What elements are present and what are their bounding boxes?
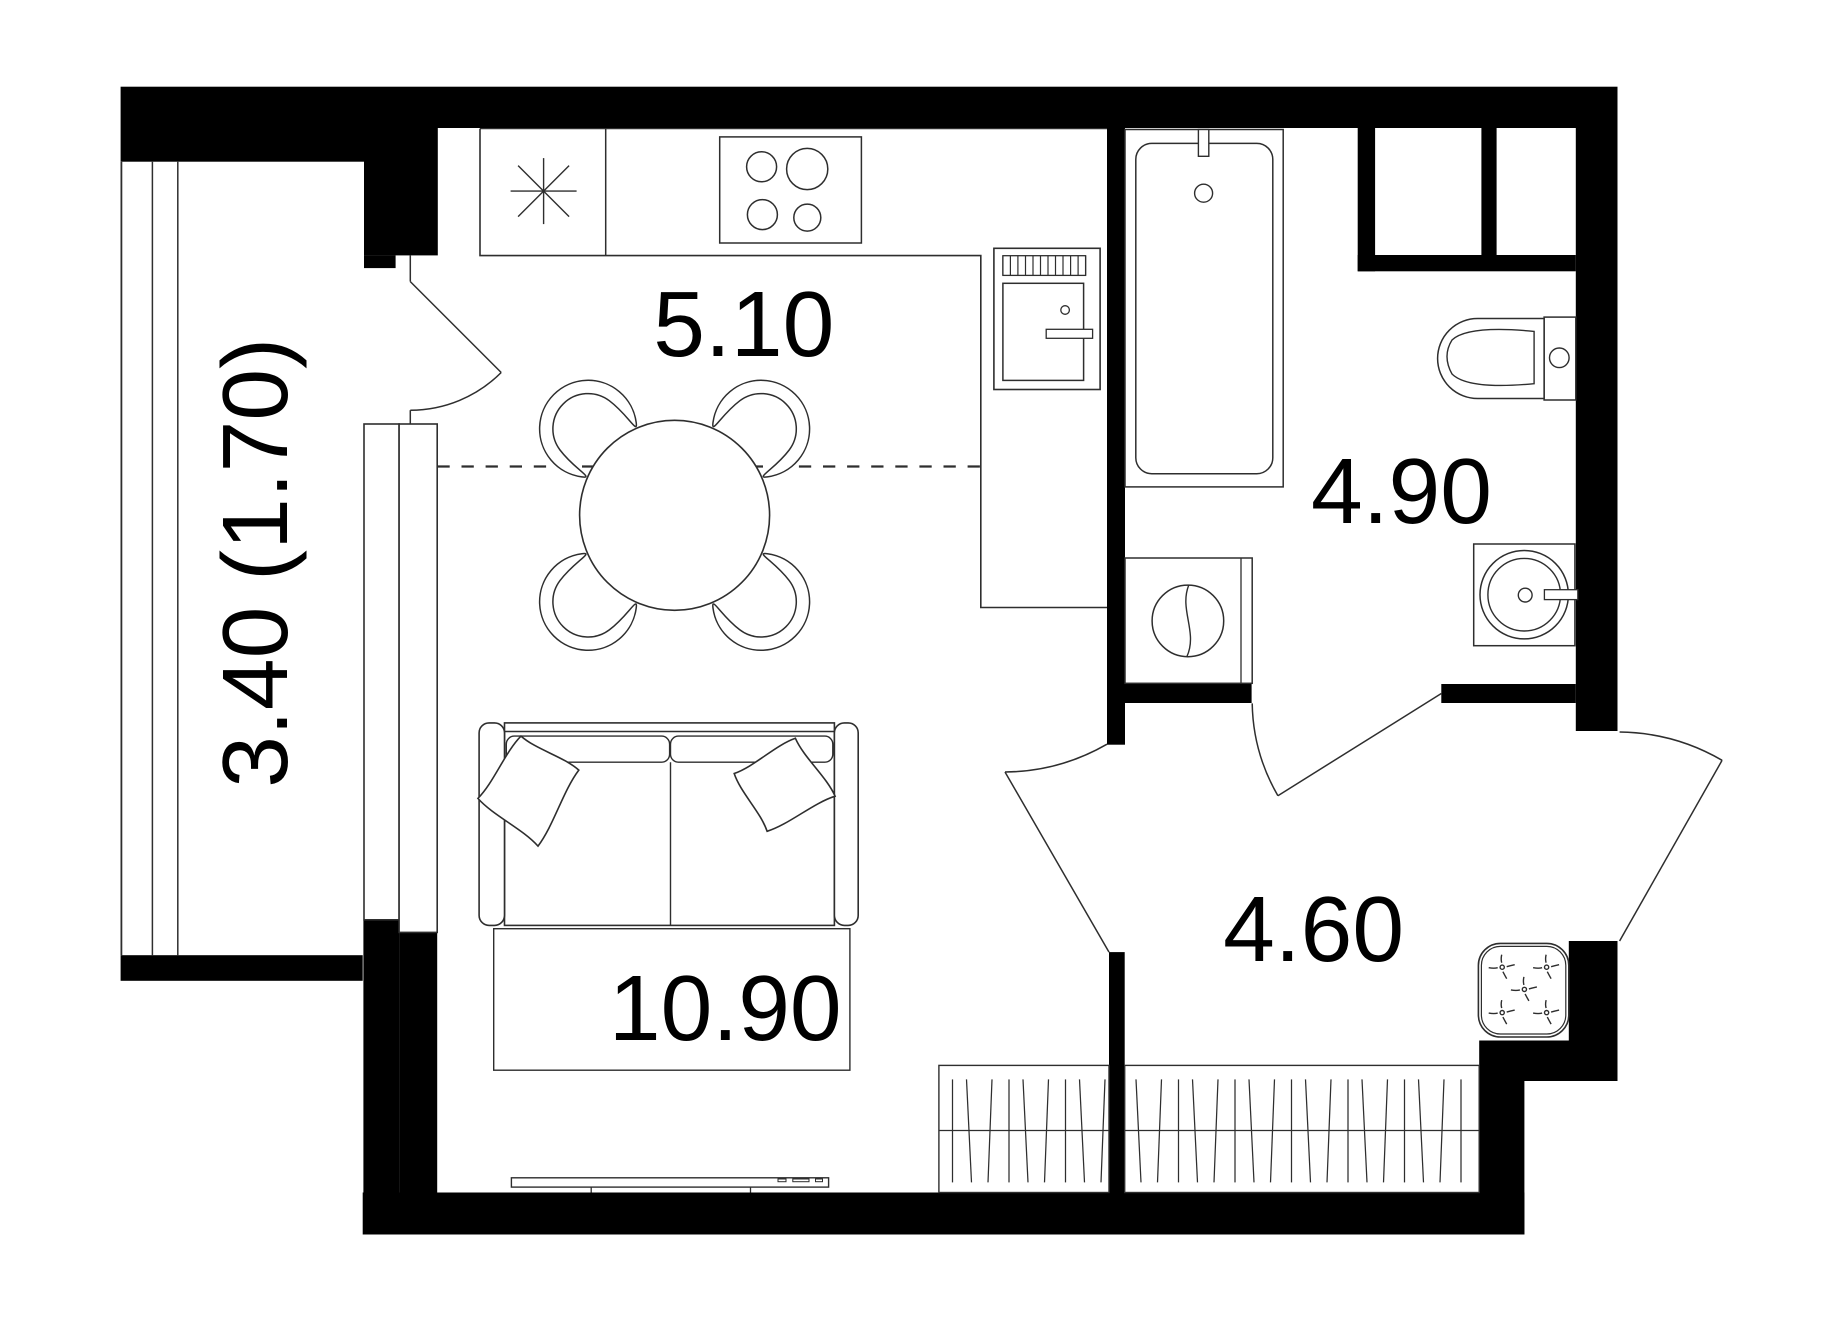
svg-text:4.60: 4.60 bbox=[1223, 877, 1404, 981]
svg-text:10.90: 10.90 bbox=[609, 956, 842, 1060]
svg-text:4.90: 4.90 bbox=[1311, 439, 1492, 543]
svg-text:3.40 (1.70): 3.40 (1.70) bbox=[203, 338, 307, 788]
svg-text:5.10: 5.10 bbox=[653, 272, 834, 376]
